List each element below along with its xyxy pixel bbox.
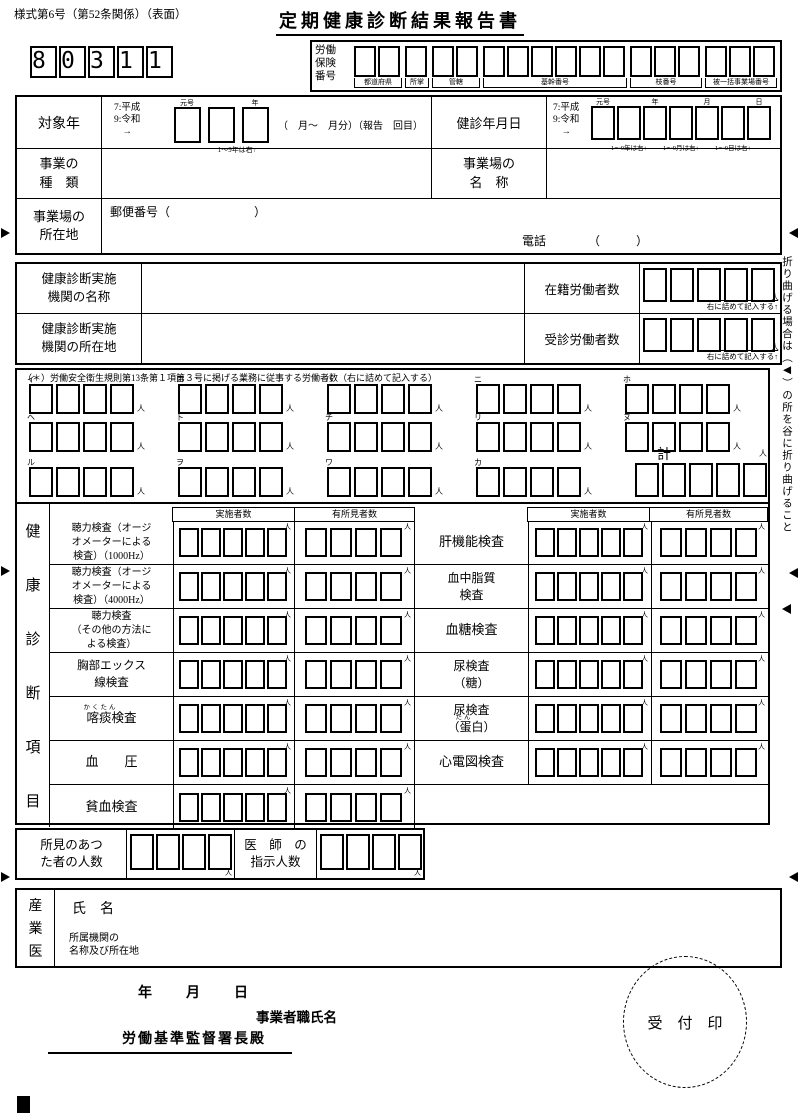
entry-box[interactable] (380, 528, 402, 557)
entry-box[interactable] (660, 616, 682, 645)
entry-box[interactable] (267, 528, 287, 557)
entry-box[interactable] (670, 268, 694, 302)
entry-box[interactable] (381, 467, 405, 497)
entry-box[interactable] (232, 384, 256, 414)
entry-box[interactable] (182, 834, 206, 870)
entry-box[interactable] (579, 528, 599, 557)
unit-person: 人 (284, 522, 291, 532)
entry-box[interactable] (110, 467, 134, 497)
entry-box[interactable] (535, 616, 555, 645)
entry-box[interactable] (729, 46, 751, 77)
entry-box[interactable] (208, 107, 235, 143)
entry-box[interactable] (223, 660, 243, 689)
entry-box[interactable] (503, 384, 527, 414)
entry-box[interactable] (535, 748, 555, 777)
unit-person: 人 (759, 448, 767, 459)
entry-box[interactable] (706, 384, 730, 414)
entry-box[interactable] (735, 748, 757, 777)
entry-box[interactable] (735, 572, 757, 601)
insurance-group-label: 枝番号 (630, 78, 702, 88)
entry-box[interactable] (83, 422, 107, 452)
exam-date-boxes (591, 106, 773, 140)
entry-box[interactable] (330, 572, 352, 601)
entry-box[interactable] (56, 422, 80, 452)
entry-box[interactable] (355, 793, 377, 822)
entry-box[interactable] (623, 748, 643, 777)
insurance-boxes-base-number (483, 46, 627, 77)
entry-box[interactable] (305, 660, 327, 689)
entry-box[interactable] (643, 318, 667, 352)
entry-box[interactable] (660, 572, 682, 601)
entry-box[interactable] (679, 422, 703, 452)
entry-box[interactable] (56, 384, 80, 414)
entry-box[interactable] (174, 107, 201, 143)
entry-box[interactable] (623, 704, 643, 733)
entry-box[interactable] (689, 463, 713, 497)
entry-box[interactable] (380, 660, 402, 689)
entry-box[interactable] (721, 106, 745, 140)
entry-box[interactable] (355, 660, 377, 689)
entry-box[interactable] (201, 793, 221, 822)
entry-box[interactable] (398, 834, 422, 870)
checkup-item-label: 血中脂質 検査 (447, 570, 495, 604)
entry-box[interactable] (327, 467, 351, 497)
entry-box[interactable] (245, 616, 265, 645)
entry-box[interactable] (685, 660, 707, 689)
entry-box[interactable] (354, 46, 376, 77)
checkup-row-anemia: 貧血検査 人 人 (50, 785, 415, 829)
entry-box[interactable] (354, 384, 378, 414)
entry-box[interactable] (83, 467, 107, 497)
entry-box[interactable] (710, 616, 732, 645)
entry-box[interactable] (179, 748, 199, 777)
entry-box[interactable] (710, 748, 732, 777)
insurance-group: 基幹番号 (483, 46, 627, 88)
entry-box[interactable] (179, 660, 199, 689)
entry-box[interactable] (330, 528, 352, 557)
findings-count-cell: 人 (295, 565, 415, 608)
entry-box[interactable] (245, 528, 265, 557)
col-label-year: 年 (240, 98, 270, 108)
entry-box[interactable] (179, 572, 199, 601)
labor-insurance-boxes: 都道府県 所掌 管轄 基幹番号 枝番号 被一括事業場番号 (354, 46, 780, 88)
entry-box[interactable] (380, 572, 402, 601)
entry-box[interactable] (557, 748, 577, 777)
entry-box[interactable] (408, 422, 432, 452)
entry-box[interactable] (201, 704, 221, 733)
entry-box[interactable] (669, 106, 693, 140)
entry-box[interactable] (83, 384, 107, 414)
entry-box[interactable] (245, 572, 265, 601)
entry-box[interactable] (267, 748, 287, 777)
entry-box[interactable] (635, 463, 659, 497)
checkup-item-label: 血 圧 (85, 753, 137, 771)
entry-box[interactable] (710, 660, 732, 689)
count-boxes (535, 616, 645, 645)
vertical-title-char: 項 (25, 736, 40, 757)
entry-box[interactable] (330, 793, 352, 822)
entry-box[interactable] (679, 384, 703, 414)
entry-box[interactable] (201, 616, 221, 645)
doctor-instruction-label: 医 師 の 指示人数 (244, 837, 307, 872)
entry-box[interactable] (531, 46, 553, 77)
entry-box[interactable] (660, 748, 682, 777)
checkup-item-label: 血糖検査 (445, 621, 497, 639)
entry-box[interactable] (178, 422, 202, 452)
entry-box[interactable] (327, 422, 351, 452)
fill-right-note: 右に詰めて記入する↑ (707, 300, 778, 312)
entry-box[interactable] (432, 46, 454, 77)
fold-mark-right-arrow (1, 228, 10, 238)
entry-box[interactable] (643, 106, 667, 140)
special-work-boxes (29, 422, 137, 452)
entry-box[interactable] (503, 422, 527, 452)
entry-box[interactable] (623, 660, 643, 689)
entry-box[interactable] (305, 793, 327, 822)
entry-box[interactable] (178, 384, 202, 414)
entry-box[interactable] (205, 467, 229, 497)
entry-box[interactable] (56, 467, 80, 497)
entry-box[interactable] (327, 384, 351, 414)
checkup-vertical-title: 健 康 診 断 項 目 (17, 504, 50, 827)
insurance-group-label: 基幹番号 (483, 78, 627, 88)
entry-box[interactable] (483, 46, 505, 77)
entry-box[interactable] (735, 528, 757, 557)
count-boxes (179, 528, 289, 557)
examined-workers-count-cell: 人 右に詰めて記入する↑ (640, 314, 780, 363)
insurance-group: 所掌 (405, 46, 429, 88)
entry-box[interactable] (579, 660, 599, 689)
entry-box[interactable] (710, 572, 732, 601)
entry-box[interactable] (380, 748, 402, 777)
unit-person: 人 (641, 742, 648, 752)
enrolled-workers-count-cell: 人 右に詰めて記入する↑ (640, 264, 780, 314)
unit-person: 人 (404, 522, 411, 532)
business-type-input-area[interactable] (102, 149, 432, 199)
entry-box[interactable] (706, 422, 730, 452)
entry-box[interactable] (503, 467, 527, 497)
kana-label: ワ (325, 457, 333, 468)
entry-box[interactable] (305, 748, 327, 777)
special-work-boxes (476, 384, 584, 414)
entry-box[interactable] (557, 384, 581, 414)
entry-box[interactable] (535, 704, 555, 733)
exam-date-boxes-wrap: 元号 年 月 日 1～9年は右↑ 1～9月は右↑ 1～9日は右↑ (591, 106, 773, 145)
entry-box[interactable] (179, 704, 199, 733)
entry-box[interactable] (372, 834, 396, 870)
entry-box[interactable] (223, 572, 243, 601)
vertical-title-char: 診 (25, 628, 40, 649)
special-work-group-he: ヘ人 (29, 422, 145, 452)
entry-box[interactable] (724, 318, 748, 352)
entry-box[interactable] (660, 660, 682, 689)
entry-box[interactable] (685, 616, 707, 645)
entry-box[interactable] (330, 748, 352, 777)
entry-box[interactable] (354, 467, 378, 497)
entry-box[interactable] (579, 616, 599, 645)
entry-box[interactable] (456, 46, 478, 77)
form-style-number: 様式第6号（第52条関係）（表面） (14, 6, 187, 22)
entry-box[interactable] (685, 704, 707, 733)
entry-box[interactable] (381, 422, 405, 452)
entry-box[interactable] (267, 616, 287, 645)
entry-box[interactable] (617, 106, 641, 140)
entry-box[interactable] (601, 572, 621, 601)
entry-box[interactable] (557, 572, 577, 601)
form-code-digit: 1 (117, 46, 144, 78)
entry-box[interactable] (201, 748, 221, 777)
entry-box[interactable] (535, 660, 555, 689)
entry-box[interactable] (29, 467, 53, 497)
entry-box[interactable] (179, 793, 199, 822)
entry-box[interactable] (110, 422, 134, 452)
entry-box[interactable] (245, 704, 265, 733)
entry-box[interactable] (623, 572, 643, 601)
entry-box[interactable] (678, 46, 700, 77)
entry-box[interactable] (305, 572, 327, 601)
unit-person: 人 (584, 441, 592, 452)
entry-box[interactable] (223, 793, 243, 822)
entry-box[interactable] (579, 748, 599, 777)
unit-person: 人 (584, 403, 592, 414)
entry-box[interactable] (201, 660, 221, 689)
kana-label: リ (474, 412, 482, 423)
enrolled-workers-label: 在籍労働者数 (544, 279, 619, 298)
entry-box[interactable] (405, 46, 427, 77)
checkup-row-blood-lipid: 血中脂質 検査 人 人 (415, 565, 768, 609)
special-work-group-wo: ヲ人 (178, 467, 294, 497)
entry-box[interactable] (201, 528, 221, 557)
receipt-seal-label: 受 付 印 (647, 1012, 722, 1033)
checkup-item-label: 聴力検査（オージ オメーターによる 検査）（1000Hz） (72, 522, 152, 564)
entry-box[interactable] (735, 616, 757, 645)
entry-box[interactable] (267, 793, 287, 822)
kana-label: ト (176, 412, 184, 423)
entry-box[interactable] (305, 616, 327, 645)
entry-box[interactable] (305, 528, 327, 557)
count-boxes (179, 748, 289, 777)
entry-box[interactable] (530, 422, 554, 452)
entry-box[interactable] (535, 572, 555, 601)
entry-box[interactable] (557, 704, 577, 733)
special-work-boxes (178, 467, 286, 497)
entry-box[interactable] (555, 46, 577, 77)
entry-box[interactable] (601, 616, 621, 645)
entry-box[interactable] (355, 748, 377, 777)
entry-box[interactable] (476, 384, 500, 414)
entry-box[interactable] (685, 748, 707, 777)
entry-box[interactable] (601, 528, 621, 557)
entry-box[interactable] (330, 660, 352, 689)
checkup-row-blood-sugar: 血糖検査 人 人 (415, 609, 768, 653)
entry-box[interactable] (697, 318, 721, 352)
entry-box[interactable] (29, 384, 53, 414)
entry-box[interactable] (735, 660, 757, 689)
entry-box[interactable] (643, 268, 667, 302)
entry-box[interactable] (201, 572, 221, 601)
entry-box[interactable] (179, 528, 199, 557)
entry-box[interactable] (625, 422, 649, 452)
entry-box[interactable] (710, 704, 732, 733)
entry-box[interactable] (381, 384, 405, 414)
entry-box[interactable] (178, 467, 202, 497)
entry-box[interactable] (156, 834, 180, 870)
entry-box[interactable] (601, 660, 621, 689)
entry-box[interactable] (267, 704, 287, 733)
entry-box[interactable] (223, 528, 243, 557)
entry-box[interactable] (747, 106, 771, 140)
physician-info-area[interactable]: 氏 名 所属機関の 名称及び所在地 (55, 890, 780, 966)
entry-box[interactable] (662, 463, 686, 497)
unit-person: 人 (404, 566, 411, 576)
entry-box[interactable] (476, 467, 500, 497)
checkup-row-audio-4000: 聴力検査（オージ オメーターによる 検査）（4000Hz） 人 人 (50, 565, 415, 609)
header-findings-right: 有所見者数 (649, 507, 768, 522)
entry-box[interactable] (330, 704, 352, 733)
entry-box[interactable] (685, 572, 707, 601)
entry-box[interactable] (716, 463, 740, 497)
entry-box[interactable] (557, 528, 577, 557)
entry-box[interactable] (232, 422, 256, 452)
special-work-boxes (476, 422, 584, 452)
entry-box[interactable] (380, 616, 402, 645)
entry-box[interactable] (601, 704, 621, 733)
entry-box[interactable] (623, 616, 643, 645)
entry-box[interactable] (355, 616, 377, 645)
header-findings-left: 有所見者数 (294, 507, 415, 522)
target-year-boxes-wrap: 元号 年 1～9年は右↑ (174, 107, 276, 148)
entry-box[interactable] (205, 384, 229, 414)
entry-box[interactable] (557, 422, 581, 452)
entry-box[interactable] (330, 616, 352, 645)
kana-label: ヘ (27, 412, 35, 423)
entry-box[interactable] (346, 834, 370, 870)
entry-box[interactable] (724, 268, 748, 302)
entry-box[interactable] (380, 704, 402, 733)
entry-box[interactable] (355, 528, 377, 557)
findings-count-cell: 人 (652, 565, 768, 608)
entry-box[interactable] (685, 528, 707, 557)
col-label-month: 月 (695, 97, 719, 107)
entry-box[interactable] (660, 528, 682, 557)
entry-box[interactable] (223, 704, 243, 733)
entry-box[interactable] (623, 528, 643, 557)
entry-box[interactable] (670, 318, 694, 352)
entry-box[interactable] (507, 46, 529, 77)
receipt-seal-area: 受 付 印 (623, 956, 747, 1088)
entry-box[interactable] (557, 660, 577, 689)
workplace-address-input-area[interactable]: 郵便番号（ ） 電話 （ ） (102, 199, 780, 253)
entry-box[interactable] (697, 268, 721, 302)
entry-box[interactable] (695, 106, 719, 140)
col-label-era: 元号 (591, 97, 615, 107)
entry-box[interactable] (259, 422, 283, 452)
doctor-instruction-label-cell: 医 師 の 指示人数 (235, 830, 317, 878)
unit-person: 人 (284, 610, 291, 620)
entry-box[interactable] (205, 422, 229, 452)
institution-address-label: 健康診断実施 機関の所在地 (41, 321, 116, 356)
entry-box[interactable] (259, 467, 283, 497)
entry-box[interactable] (603, 46, 625, 77)
entry-box[interactable] (408, 467, 432, 497)
entry-box[interactable] (530, 384, 554, 414)
entry-box[interactable] (735, 704, 757, 733)
entry-box[interactable] (625, 384, 649, 414)
entry-box[interactable] (259, 384, 283, 414)
entry-box[interactable] (29, 422, 53, 452)
form-code-digit: 1 (146, 46, 173, 78)
entry-box[interactable] (579, 704, 599, 733)
institution-name-input-area[interactable] (142, 264, 525, 314)
entry-box[interactable] (601, 748, 621, 777)
fold-mark-left-arrow (789, 872, 798, 882)
entry-box[interactable] (380, 793, 402, 822)
workplace-name-input-area[interactable] (547, 149, 780, 199)
entry-box[interactable] (305, 704, 327, 733)
entry-box[interactable] (110, 384, 134, 414)
findings-count-cell: 人 (295, 653, 415, 696)
entry-box[interactable] (245, 660, 265, 689)
unit-person: 人 (286, 486, 294, 497)
entry-box[interactable] (557, 616, 577, 645)
entry-box[interactable] (408, 384, 432, 414)
entry-box[interactable] (245, 748, 265, 777)
entry-box[interactable] (753, 46, 775, 77)
entry-box[interactable] (557, 467, 581, 497)
physician-name-label: 氏 名 (72, 898, 114, 918)
entry-box[interactable] (267, 572, 287, 601)
entry-box[interactable] (245, 793, 265, 822)
checkup-item-label: 心電図検査 (439, 753, 504, 771)
unit-person: 人 (225, 868, 232, 878)
entry-box[interactable] (710, 528, 732, 557)
header-done-left: 実施者数 (172, 507, 295, 522)
entry-box[interactable] (535, 528, 555, 557)
entry-box[interactable] (354, 422, 378, 452)
entry-box[interactable] (654, 46, 676, 77)
entry-box[interactable] (591, 106, 615, 140)
entry-box[interactable] (179, 616, 199, 645)
entry-box[interactable] (320, 834, 344, 870)
entry-box[interactable] (476, 422, 500, 452)
kana-label: チ (325, 412, 333, 423)
entry-box[interactable] (530, 467, 554, 497)
exam-date-label: 健診年月日 (456, 113, 521, 132)
entry-box[interactable] (652, 384, 676, 414)
entry-box[interactable] (705, 46, 727, 77)
entry-box[interactable] (208, 834, 232, 870)
entry-box[interactable] (378, 46, 400, 77)
entry-box[interactable] (579, 46, 601, 77)
entry-box[interactable] (660, 704, 682, 733)
fold-mark-left-arrow (789, 568, 798, 578)
entry-box[interactable] (223, 616, 243, 645)
entry-box[interactable] (242, 107, 269, 143)
special-work-boxes (178, 422, 286, 452)
entry-box[interactable] (355, 704, 377, 733)
entry-box[interactable] (267, 660, 287, 689)
entry-box[interactable] (630, 46, 652, 77)
unit-person: 人 (137, 441, 145, 452)
unit-person: 人 (284, 654, 291, 664)
entry-box[interactable] (355, 572, 377, 601)
entry-box[interactable] (232, 467, 256, 497)
institution-address-input-area[interactable] (142, 314, 525, 363)
entry-box[interactable] (579, 572, 599, 601)
entry-box[interactable] (130, 834, 154, 870)
entry-box[interactable] (743, 463, 767, 497)
entry-box[interactable] (223, 748, 243, 777)
